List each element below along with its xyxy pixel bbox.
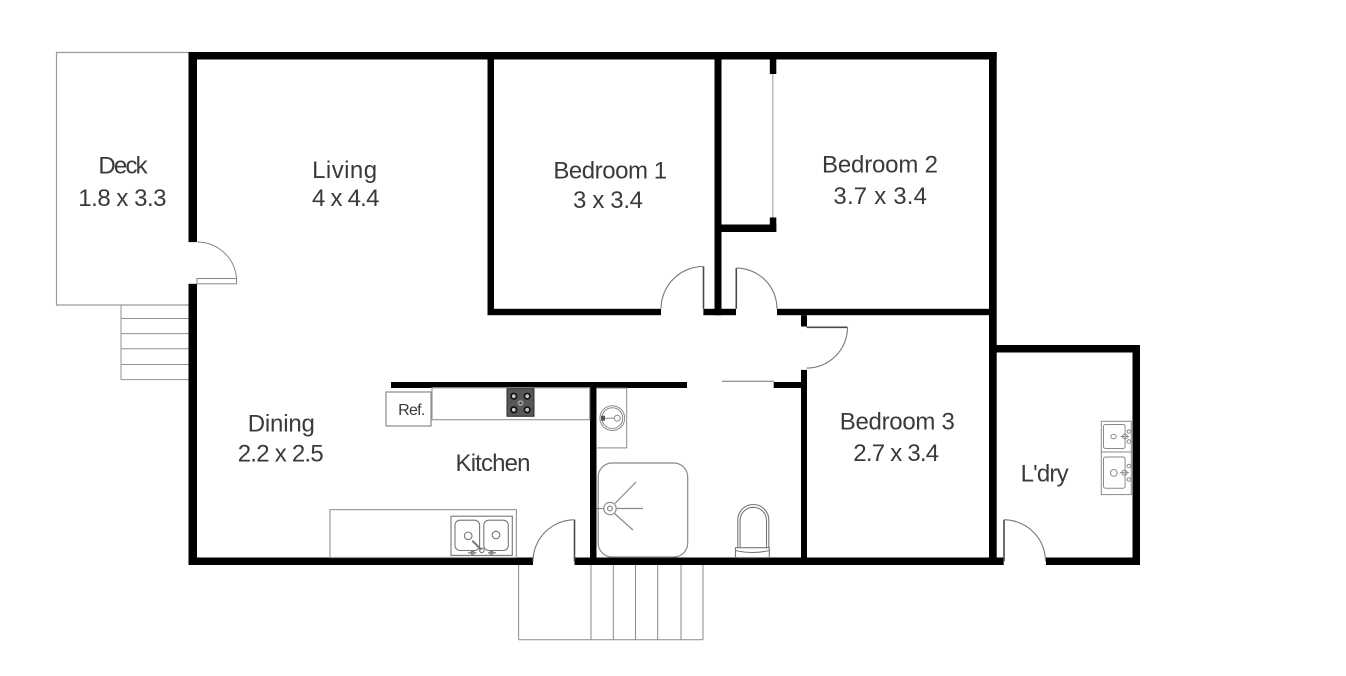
- svg-text:Dining: Dining: [248, 411, 315, 438]
- svg-text:Bedroom 2: Bedroom 2: [822, 152, 938, 179]
- svg-text:3.7 x 3.4: 3.7 x 3.4: [833, 183, 927, 210]
- svg-text:L'dry: L'dry: [1021, 460, 1069, 487]
- svg-text:Ref.: Ref.: [398, 402, 425, 419]
- svg-text:3 x 3.4: 3 x 3.4: [573, 187, 643, 214]
- svg-text:2.2 x 2.5: 2.2 x 2.5: [238, 441, 324, 468]
- svg-text:Living: Living: [312, 157, 377, 184]
- svg-text:Kitchen: Kitchen: [456, 450, 531, 477]
- svg-text:Bedroom 3: Bedroom 3: [840, 409, 955, 436]
- svg-text:2.7 x 3.4: 2.7 x 3.4: [853, 440, 939, 467]
- svg-text:Bedroom 1: Bedroom 1: [553, 157, 667, 184]
- svg-text:1.8 x 3.3: 1.8 x 3.3: [78, 185, 166, 212]
- svg-text:4 x 4.4: 4 x 4.4: [312, 185, 380, 212]
- svg-text:Deck: Deck: [98, 152, 148, 179]
